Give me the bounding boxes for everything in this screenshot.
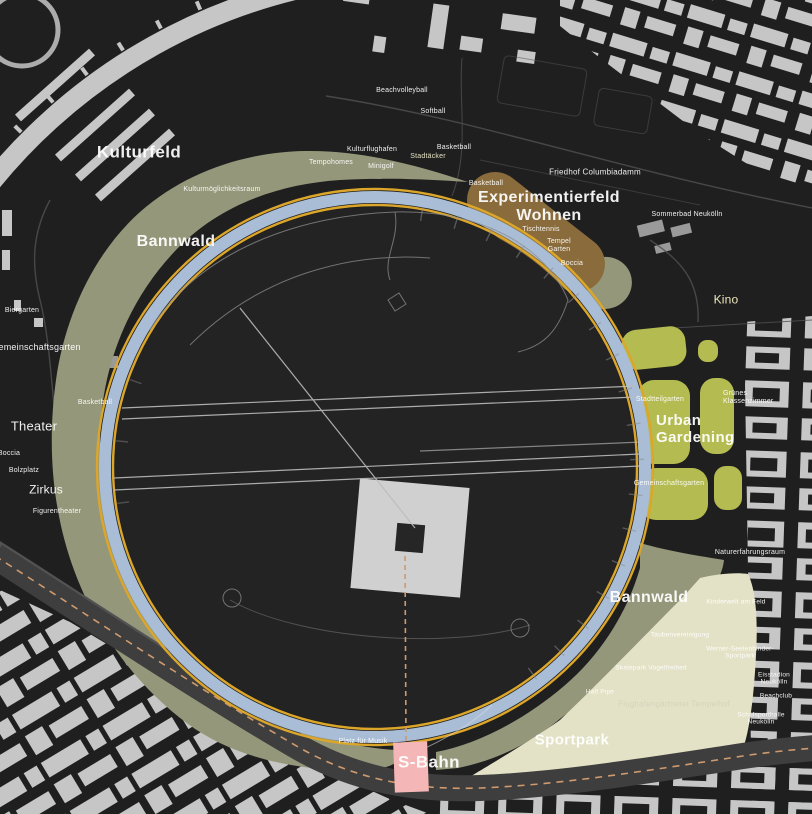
tempelhofer-feld-map: KulturfeldBannwaldExperimentierfeld Wohn… [0,0,812,814]
sommerbad-buildings [637,213,695,257]
scattered-buildings-top [337,0,542,74]
central-plaza [350,478,469,597]
map-graphics [0,0,812,814]
ring-promenade [97,189,653,745]
sbahn-station-marker [393,741,429,792]
